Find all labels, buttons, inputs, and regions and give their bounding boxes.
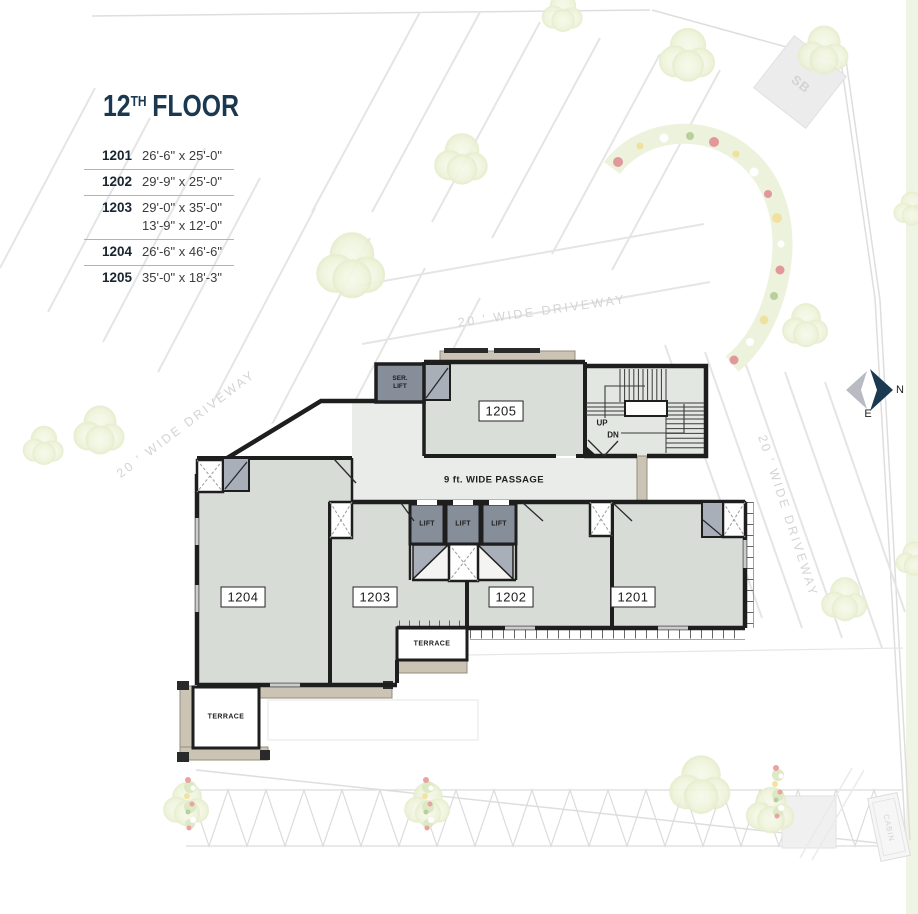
terrace-label-southwest: TERRACE	[208, 714, 245, 721]
service-lift-label: SER. LIFT	[392, 375, 407, 391]
lift-label-2: LIFT	[455, 521, 471, 528]
legend-row-1203: 1203 29'-0" x 35'-0" 13'-9" x 12'-0"	[84, 196, 234, 240]
compass-north-label: N	[896, 384, 904, 396]
unit-number: 1202	[84, 173, 132, 191]
page-title: 12THFLOOR	[103, 86, 239, 121]
title-ordinal: TH	[131, 93, 147, 110]
lift-label-1: LIFT	[419, 521, 435, 528]
unit-label-1201: 1201	[611, 587, 656, 608]
title-number: 12	[103, 88, 131, 123]
flower-cluster	[422, 777, 434, 831]
unit-dimensions: 26'-6" x 46'-6"	[142, 243, 222, 261]
legend-row-1201: 1201 26'-6" x 25'-0"	[84, 144, 234, 170]
title-word: FLOOR	[152, 88, 239, 123]
flower-bed-arc	[612, 132, 785, 365]
flower-cluster	[772, 765, 784, 819]
unit-label-1203: 1203	[353, 587, 398, 608]
unit-number: 1203	[84, 199, 132, 235]
unit-dimensions: 29'-0" x 35'-0"	[142, 199, 222, 217]
legend-row-1202: 1202 29'-9" x 25'-0"	[84, 170, 234, 196]
terrace-label-middle: TERRACE	[414, 641, 451, 648]
unit-number: 1205	[84, 269, 132, 287]
legend-row-1204: 1204 26'-6" x 46'-6"	[84, 240, 234, 266]
unit-dimensions: 13'-9" x 12'-0"	[142, 217, 222, 235]
stairs-down-label: DN	[607, 431, 619, 440]
compass-east-label: E	[864, 408, 871, 420]
unit-dimensions: 26'-6" x 25'-0"	[142, 147, 222, 165]
legend-row-1205: 1205 35'-0" x 18'-3"	[84, 266, 234, 291]
flower-cluster	[184, 777, 196, 831]
passage-label: 9 ft. WIDE PASSAGE	[444, 475, 544, 486]
unit-dimensions-legend: 1201 26'-6" x 25'-0" 1202 29'-9" x 25'-0…	[84, 144, 234, 291]
unit-number: 1201	[84, 147, 132, 165]
unit-dimensions: 29'-9" x 25'-0"	[142, 173, 222, 191]
unit-number: 1204	[84, 243, 132, 261]
unit-label-1202: 1202	[489, 587, 534, 608]
unit-label-1204: 1204	[221, 587, 266, 608]
floorplan-page: 12THFLOOR 1201 26'-6" x 25'-0" 1202 29'-…	[0, 0, 918, 914]
unit-label-1205: 1205	[479, 401, 524, 422]
lift-label-3: LIFT	[491, 521, 507, 528]
unit-dimensions: 35'-0" x 18'-3"	[142, 269, 222, 287]
stairs-up-label: UP	[596, 419, 607, 428]
